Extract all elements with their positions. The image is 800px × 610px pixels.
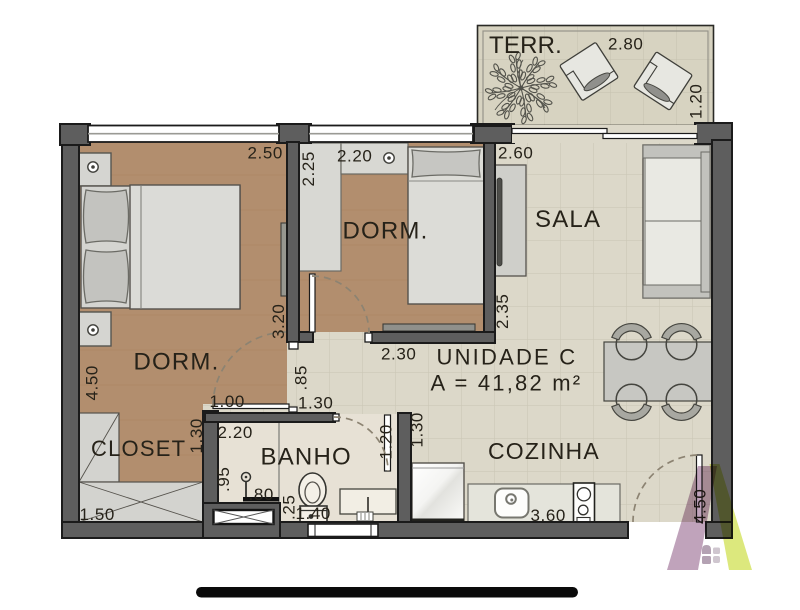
svg-text:2.50: 2.50: [248, 144, 284, 163]
svg-text:TERR.: TERR.: [489, 32, 562, 59]
svg-text:A = 41,82 m²: A = 41,82 m²: [431, 371, 583, 396]
svg-text:.25: .25: [280, 495, 299, 520]
svg-text:4.50: 4.50: [83, 365, 102, 401]
svg-text:2.25: 2.25: [299, 151, 318, 187]
svg-text:1.00: 1.00: [210, 392, 246, 411]
svg-text:2.20: 2.20: [218, 423, 254, 442]
svg-text:DORM.: DORM.: [343, 218, 429, 245]
svg-text:2.60: 2.60: [498, 144, 534, 163]
svg-text:COZINHA: COZINHA: [488, 438, 600, 464]
svg-text:BANHO: BANHO: [261, 444, 352, 471]
svg-text:UNIDADE C: UNIDADE C: [437, 345, 578, 370]
svg-text:1.30: 1.30: [408, 412, 427, 448]
svg-text:1.30: 1.30: [298, 394, 334, 413]
svg-text:2.30: 2.30: [381, 345, 417, 364]
svg-text:2.80: 2.80: [608, 35, 644, 54]
svg-text:3.20: 3.20: [269, 304, 288, 340]
svg-text:.95: .95: [214, 467, 233, 492]
svg-text:1.20: 1.20: [377, 424, 396, 460]
svg-text:3.60: 3.60: [531, 506, 567, 525]
svg-text:DORM.: DORM.: [134, 349, 220, 376]
svg-text:1.40: 1.40: [296, 504, 332, 523]
svg-text:CLOSET: CLOSET: [91, 436, 186, 461]
svg-text:.85: .85: [292, 365, 311, 390]
svg-text:2.20: 2.20: [337, 147, 373, 166]
svg-text:1.20: 1.20: [687, 84, 706, 120]
svg-text:1.30: 1.30: [187, 418, 206, 454]
svg-text:.80: .80: [249, 485, 274, 504]
svg-text:2.35: 2.35: [493, 294, 512, 330]
svg-text:1.50: 1.50: [80, 505, 116, 524]
svg-text:SALA: SALA: [535, 206, 601, 233]
